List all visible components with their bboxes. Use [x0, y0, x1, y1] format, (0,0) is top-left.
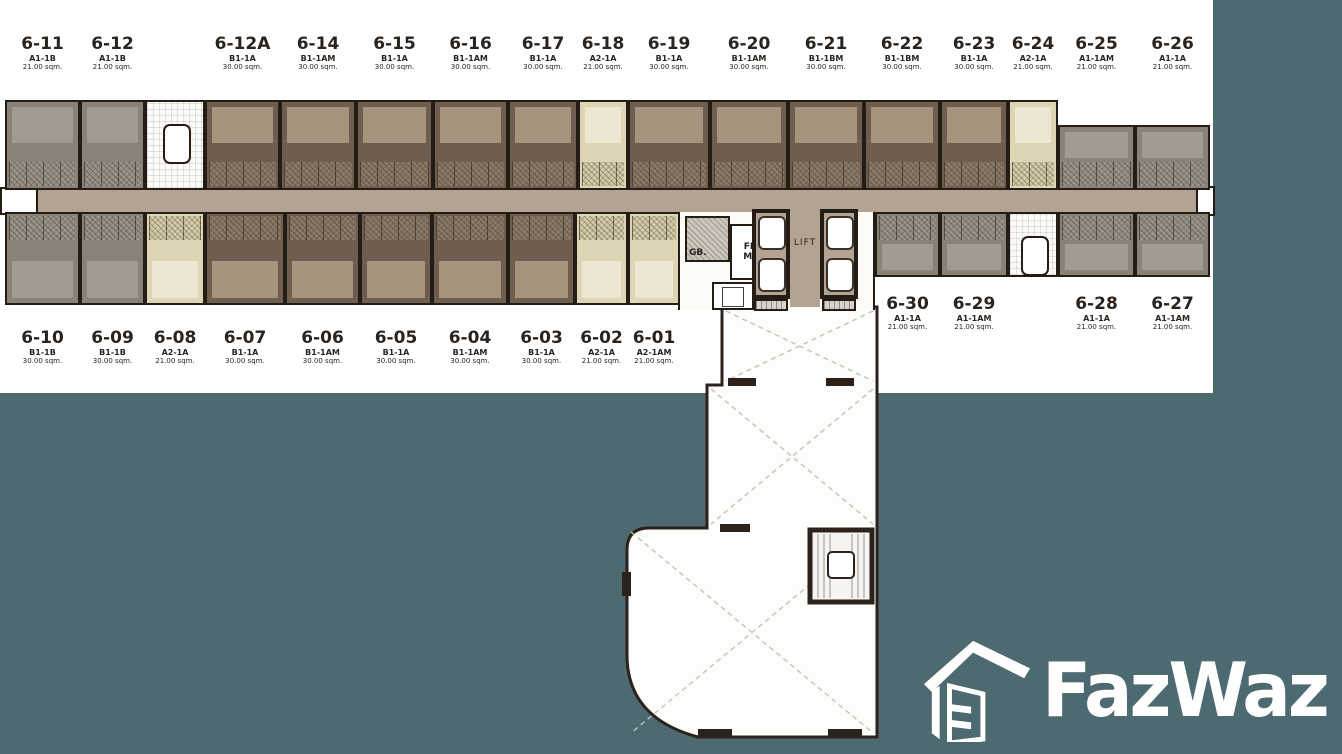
unit-bath-strip — [579, 216, 624, 240]
unit-bath-strip — [582, 162, 624, 186]
unit-number: 6-25 — [1075, 36, 1118, 54]
unit-type: B1-1A — [520, 348, 563, 357]
unit-label-6-30: 6-30A1-1A21.00 sqm. — [886, 296, 929, 331]
unit-6-11 — [5, 100, 80, 190]
unit-bath-strip — [437, 162, 504, 186]
shaft-vent-left — [754, 299, 788, 311]
garbage-room: GB. — [685, 216, 730, 262]
unit-6-05 — [360, 212, 432, 305]
unit-6-10 — [5, 212, 80, 305]
unit-type: A2-1AM — [633, 348, 676, 357]
unit-room — [582, 261, 621, 298]
unit-type: A2-1A — [582, 54, 625, 63]
unit-area: 30.00 sqm. — [522, 63, 565, 71]
unit-room — [635, 107, 703, 143]
unit-bath-strip — [1012, 162, 1054, 186]
unit-number: 6-10 — [21, 330, 64, 348]
unit-bath-strip — [284, 162, 352, 186]
unit-number: 6-19 — [648, 36, 691, 54]
unit-bath-strip — [209, 216, 281, 240]
unit-type: B1-1AM — [297, 54, 340, 63]
unit-number: 6-01 — [633, 330, 676, 348]
unit-6-14 — [280, 100, 356, 190]
unit-type: B1-1B — [91, 348, 134, 357]
unit-area: 21.00 sqm. — [886, 323, 929, 331]
unit-number: 6-14 — [297, 36, 340, 54]
unit-number: 6-22 — [881, 36, 924, 54]
unit-bath-strip — [84, 162, 141, 186]
unit-room — [12, 107, 73, 143]
unit-type: B1-1AM — [449, 54, 492, 63]
unit-label-6-05: 6-05B1-1A30.00 sqm. — [375, 330, 418, 365]
unit-6-15 — [356, 100, 433, 190]
lift-lobby: LIFT — [790, 190, 820, 307]
unit-bath-strip — [879, 216, 936, 240]
unit-type: B1-1A — [522, 54, 565, 63]
unit-6-04 — [432, 212, 508, 305]
unit-room — [440, 107, 501, 143]
unit-bath-strip — [512, 162, 574, 186]
unit-number: 6-26 — [1151, 36, 1194, 54]
unit-6-28 — [1058, 212, 1135, 277]
lift-shaft-right — [820, 209, 858, 299]
unit-room — [287, 107, 349, 143]
unit-type: B1-1A — [373, 54, 416, 63]
stair-elevator-box — [163, 124, 191, 164]
unit-number: 6-16 — [449, 36, 492, 54]
unit-label-6-18: 6-18A2-1A21.00 sqm. — [582, 36, 625, 71]
unit-area: 21.00 sqm. — [1151, 323, 1194, 331]
unit-area: 21.00 sqm. — [1012, 63, 1055, 71]
unit-number: 6-04 — [449, 330, 492, 348]
unit-6-29 — [940, 212, 1008, 277]
fazwaz-brand-text: FazWaz — [1042, 653, 1327, 728]
unit-room — [87, 261, 138, 298]
unit-bath-strip — [149, 216, 201, 240]
unit-number: 6-03 — [520, 330, 563, 348]
unit-type: B1-1AM — [728, 54, 771, 63]
unit-label-6-12: 6-12A1-1B21.00 sqm. — [91, 36, 134, 71]
unit-bath-strip — [512, 216, 571, 240]
unit-label-6-14: 6-14B1-1AM30.00 sqm. — [297, 36, 340, 71]
fazwaz-watermark: FazWaz — [922, 638, 1327, 742]
unit-room — [947, 244, 1001, 270]
unit-room — [882, 244, 933, 270]
unit-label-6-22: 6-22B1-1BM30.00 sqm. — [881, 36, 924, 71]
unit-area: 30.00 sqm. — [375, 357, 418, 365]
unit-number: 6-06 — [301, 330, 344, 348]
unit-6-27 — [1135, 212, 1210, 277]
unit-bath-strip — [436, 216, 504, 240]
unit-type: A2-1A — [1012, 54, 1055, 63]
unit-area: 30.00 sqm. — [297, 63, 340, 71]
lift-car — [758, 216, 786, 250]
unit-room — [212, 107, 273, 143]
unit-type: A1-1AM — [1075, 54, 1118, 63]
unit-bath-strip — [792, 162, 860, 186]
unit-bath-strip — [944, 216, 1004, 240]
lift-shaft-left — [752, 209, 790, 299]
unit-room — [439, 261, 501, 298]
tower-stair-core — [810, 530, 872, 602]
unit-area: 30.00 sqm. — [224, 357, 267, 365]
unit-6-02 — [575, 212, 628, 305]
unit-number: 6-27 — [1151, 296, 1194, 314]
unit-type: A1-1AM — [1151, 314, 1194, 323]
unit-6-23 — [940, 100, 1008, 190]
unit-room — [635, 261, 673, 298]
unit-type: A1-1A — [1075, 314, 1118, 323]
unit-area: 30.00 sqm. — [728, 63, 771, 71]
unit-label-6-15: 6-15B1-1A30.00 sqm. — [373, 36, 416, 71]
unit-label-6-01: 6-01A2-1AM21.00 sqm. — [633, 330, 676, 365]
unit-number: 6-12 — [91, 36, 134, 54]
unit-type: B1-1B — [21, 348, 64, 357]
unit-6-24 — [1008, 100, 1058, 190]
unit-6-09 — [80, 212, 145, 305]
unit-area: 30.00 sqm. — [215, 63, 271, 71]
unit-label-6-06: 6-06B1-1AM30.00 sqm. — [301, 330, 344, 365]
unit-area: 30.00 sqm. — [373, 63, 416, 71]
unit-label-6-02: 6-02A2-1A21.00 sqm. — [580, 330, 623, 365]
unit-label-6-23: 6-23B1-1A30.00 sqm. — [953, 36, 996, 71]
unit-area: 30.00 sqm. — [21, 357, 64, 365]
unit-room — [363, 107, 426, 143]
unit-6-26 — [1135, 125, 1210, 190]
floorplan-canvas: GB. FIRE MAN LIFT 6-11A1-1B21.00 sqm.6-1… — [0, 0, 1342, 754]
unit-room — [1142, 132, 1203, 158]
unit-number: 6-02 — [580, 330, 623, 348]
unit-label-6-26: 6-26A1-1A21.00 sqm. — [1151, 36, 1194, 71]
unit-area: 21.00 sqm. — [953, 323, 996, 331]
unit-number: 6-15 — [373, 36, 416, 54]
unit-type: A2-1A — [154, 348, 197, 357]
unit-label-6-03: 6-03B1-1A30.00 sqm. — [520, 330, 563, 365]
unit-type: A2-1A — [580, 348, 623, 357]
unit-number: 6-18 — [582, 36, 625, 54]
lift-label: LIFT — [794, 238, 816, 248]
garbage-room-label: GB. — [689, 248, 707, 258]
unit-type: A1-1AM — [953, 314, 996, 323]
unit-type: B1-1AM — [449, 348, 492, 357]
unit-area: 30.00 sqm. — [805, 63, 848, 71]
unit-type: A1-1B — [91, 54, 134, 63]
unit-type: B1-1A — [215, 54, 271, 63]
unit-6-12A — [205, 100, 280, 190]
unit-6-06 — [285, 212, 360, 305]
unit-area: 30.00 sqm. — [520, 357, 563, 365]
unit-type: B1-1A — [224, 348, 267, 357]
unit-6-03 — [508, 212, 575, 305]
unit-bath-strip — [9, 162, 76, 186]
unit-area: 21.00 sqm. — [1075, 323, 1118, 331]
unit-number: 6-30 — [886, 296, 929, 314]
unit-label-6-11: 6-11A1-1B21.00 sqm. — [21, 36, 64, 71]
unit-label-6-25: 6-25A1-1AM21.00 sqm. — [1075, 36, 1118, 71]
stair-elevator-box — [1021, 236, 1049, 276]
unit-6-25 — [1058, 125, 1135, 190]
unit-area: 30.00 sqm. — [953, 63, 996, 71]
central-corridor — [8, 190, 1196, 212]
unit-room — [795, 107, 857, 143]
unit-area: 30.00 sqm. — [648, 63, 691, 71]
unit-area: 30.00 sqm. — [449, 63, 492, 71]
unit-room — [515, 107, 571, 143]
unit-number: 6-21 — [805, 36, 848, 54]
unit-label-6-21: 6-21B1-1BM30.00 sqm. — [805, 36, 848, 71]
unit-label-6-17: 6-17B1-1A30.00 sqm. — [522, 36, 565, 71]
unit-room — [212, 261, 278, 298]
unit-label-6-07: 6-07B1-1A30.00 sqm. — [224, 330, 267, 365]
unit-room — [871, 107, 933, 143]
unit-area: 21.00 sqm. — [580, 357, 623, 365]
unit-bath-strip — [364, 216, 428, 240]
service-room-fixture — [722, 287, 744, 307]
unit-room — [1065, 244, 1128, 270]
fazwaz-house-icon — [922, 638, 1032, 742]
lift-car — [758, 258, 786, 292]
unit-bath-strip — [714, 162, 784, 186]
unit-6-19 — [628, 100, 710, 190]
unit-area: 21.00 sqm. — [91, 63, 134, 71]
unit-area: 21.00 sqm. — [154, 357, 197, 365]
unit-area: 30.00 sqm. — [91, 357, 134, 365]
unit-label-6-16: 6-16B1-1AM30.00 sqm. — [449, 36, 492, 71]
unit-room — [292, 261, 353, 298]
unit-type: B1-1AM — [301, 348, 344, 357]
unit-type: A1-1A — [1151, 54, 1194, 63]
unit-number: 6-09 — [91, 330, 134, 348]
unit-label-6-12A: 6-12AB1-1A30.00 sqm. — [215, 36, 271, 71]
unit-label-6-08: 6-08A2-1A21.00 sqm. — [154, 330, 197, 365]
unit-6-18 — [578, 100, 628, 190]
unit-bath-strip — [1139, 162, 1206, 186]
unit-type: B1-1A — [953, 54, 996, 63]
unit-area: 21.00 sqm. — [1151, 63, 1194, 71]
unit-room — [947, 107, 1001, 143]
unit-label-6-10: 6-10B1-1B30.00 sqm. — [21, 330, 64, 365]
unit-bath-strip — [1139, 216, 1206, 240]
unit-area: 30.00 sqm. — [881, 63, 924, 71]
unit-room — [367, 261, 425, 298]
building-core: GB. FIRE MAN LIFT — [678, 212, 875, 310]
unit-label-6-27: 6-27A1-1AM21.00 sqm. — [1151, 296, 1194, 331]
unit-bath-strip — [868, 162, 936, 186]
unit-area: 21.00 sqm. — [633, 357, 676, 365]
service-room — [712, 282, 754, 310]
corridor-end-left — [0, 187, 38, 215]
unit-bath-strip — [632, 162, 706, 186]
unit-type: B1-1BM — [805, 54, 848, 63]
unit-room — [152, 261, 198, 298]
unit-6-01 — [628, 212, 680, 305]
unit-6-07 — [205, 212, 285, 305]
unit-room — [1015, 107, 1051, 143]
lift-car — [826, 258, 854, 292]
unit-number: 6-28 — [1075, 296, 1118, 314]
unit-bath-strip — [360, 162, 429, 186]
unit-number: 6-23 — [953, 36, 996, 54]
unit-type: A1-1B — [21, 54, 64, 63]
unit-room — [87, 107, 138, 143]
unit-number: 6-24 — [1012, 36, 1055, 54]
unit-label-6-04: 6-04B1-1AM30.00 sqm. — [449, 330, 492, 365]
unit-6-20 — [710, 100, 788, 190]
lift-car — [826, 216, 854, 250]
unit-room — [12, 261, 73, 298]
stair-core — [145, 100, 205, 190]
unit-label-6-09: 6-09B1-1B30.00 sqm. — [91, 330, 134, 365]
unit-type: B1-1A — [648, 54, 691, 63]
unit-6-22 — [864, 100, 940, 190]
unit-room — [1065, 132, 1128, 158]
unit-bath-strip — [944, 162, 1004, 186]
unit-bath-strip — [632, 216, 676, 240]
unit-room — [1142, 244, 1203, 270]
unit-room — [717, 107, 781, 143]
tower-outline — [600, 300, 900, 754]
unit-label-6-28: 6-28A1-1A21.00 sqm. — [1075, 296, 1118, 331]
unit-number: 6-17 — [522, 36, 565, 54]
shaft-vent-right — [822, 299, 856, 311]
unit-bath-strip — [9, 216, 76, 240]
unit-area: 21.00 sqm. — [582, 63, 625, 71]
unit-bath-strip — [209, 162, 276, 186]
unit-6-08 — [145, 212, 205, 305]
unit-area: 30.00 sqm. — [301, 357, 344, 365]
unit-area: 21.00 sqm. — [21, 63, 64, 71]
unit-bath-strip — [1062, 216, 1131, 240]
unit-room — [515, 261, 568, 298]
unit-room — [585, 107, 621, 143]
unit-number: 6-07 — [224, 330, 267, 348]
unit-number: 6-12A — [215, 36, 271, 54]
unit-area: 21.00 sqm. — [1075, 63, 1118, 71]
unit-number: 6-20 — [728, 36, 771, 54]
unit-6-12 — [80, 100, 145, 190]
unit-type: B1-1A — [375, 348, 418, 357]
unit-6-16 — [433, 100, 508, 190]
unit-6-21 — [788, 100, 864, 190]
unit-type: B1-1BM — [881, 54, 924, 63]
unit-label-6-19: 6-19B1-1A30.00 sqm. — [648, 36, 691, 71]
unit-number: 6-11 — [21, 36, 64, 54]
unit-number: 6-08 — [154, 330, 197, 348]
unit-bath-strip — [1062, 162, 1131, 186]
unit-6-17 — [508, 100, 578, 190]
unit-type: A1-1A — [886, 314, 929, 323]
unit-number: 6-05 — [375, 330, 418, 348]
unit-6-30 — [875, 212, 940, 277]
stair-core — [1008, 212, 1058, 277]
unit-label-6-29: 6-29A1-1AM21.00 sqm. — [953, 296, 996, 331]
tower-wall-path — [627, 307, 877, 737]
unit-area: 30.00 sqm. — [449, 357, 492, 365]
unit-label-6-20: 6-20B1-1AM30.00 sqm. — [728, 36, 771, 71]
unit-bath-strip — [84, 216, 141, 240]
unit-number: 6-29 — [953, 296, 996, 314]
unit-bath-strip — [289, 216, 356, 240]
unit-label-6-24: 6-24A2-1A21.00 sqm. — [1012, 36, 1055, 71]
